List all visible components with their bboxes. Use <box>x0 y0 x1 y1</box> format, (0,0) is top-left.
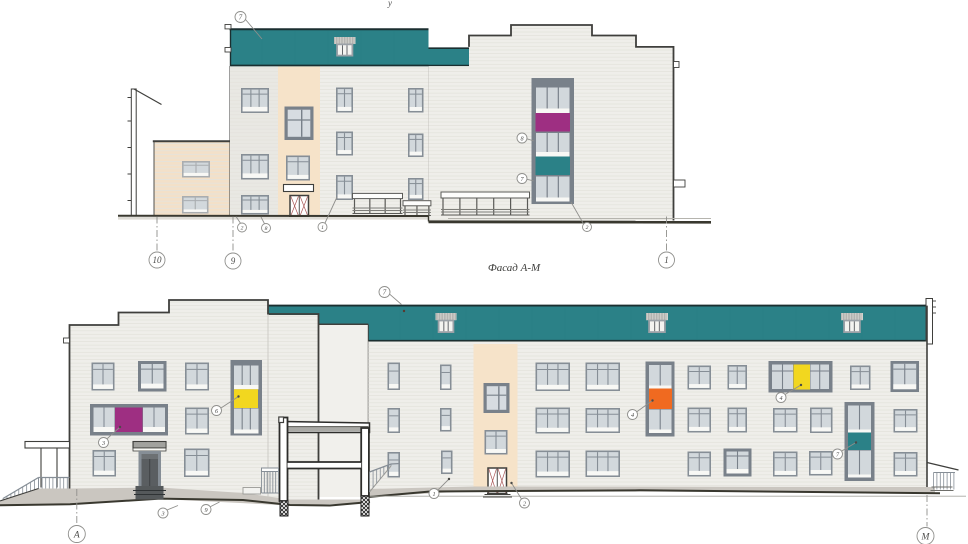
svg-text:7: 7 <box>239 14 243 21</box>
svg-text:Фасад А-М: Фасад А-М <box>488 262 541 274</box>
svg-text:3: 3 <box>101 440 105 447</box>
svg-text:1: 1 <box>664 255 669 265</box>
svg-text:9: 9 <box>231 256 236 266</box>
svg-text:2: 2 <box>241 226 244 232</box>
svg-text:М: М <box>921 532 931 542</box>
svg-text:7: 7 <box>383 289 387 296</box>
svg-text:4: 4 <box>631 412 634 419</box>
svg-text:у: у <box>387 0 392 8</box>
svg-text:2: 2 <box>523 500 526 507</box>
svg-text:1: 1 <box>432 491 435 498</box>
svg-text:4: 4 <box>779 395 782 402</box>
svg-text:10: 10 <box>153 255 163 265</box>
svg-text:А: А <box>73 530 80 540</box>
svg-text:1: 1 <box>321 225 324 231</box>
svg-text:8: 8 <box>265 226 268 232</box>
svg-text:9: 9 <box>204 507 207 514</box>
svg-text:3: 3 <box>160 510 164 517</box>
svg-text:2: 2 <box>586 225 589 231</box>
